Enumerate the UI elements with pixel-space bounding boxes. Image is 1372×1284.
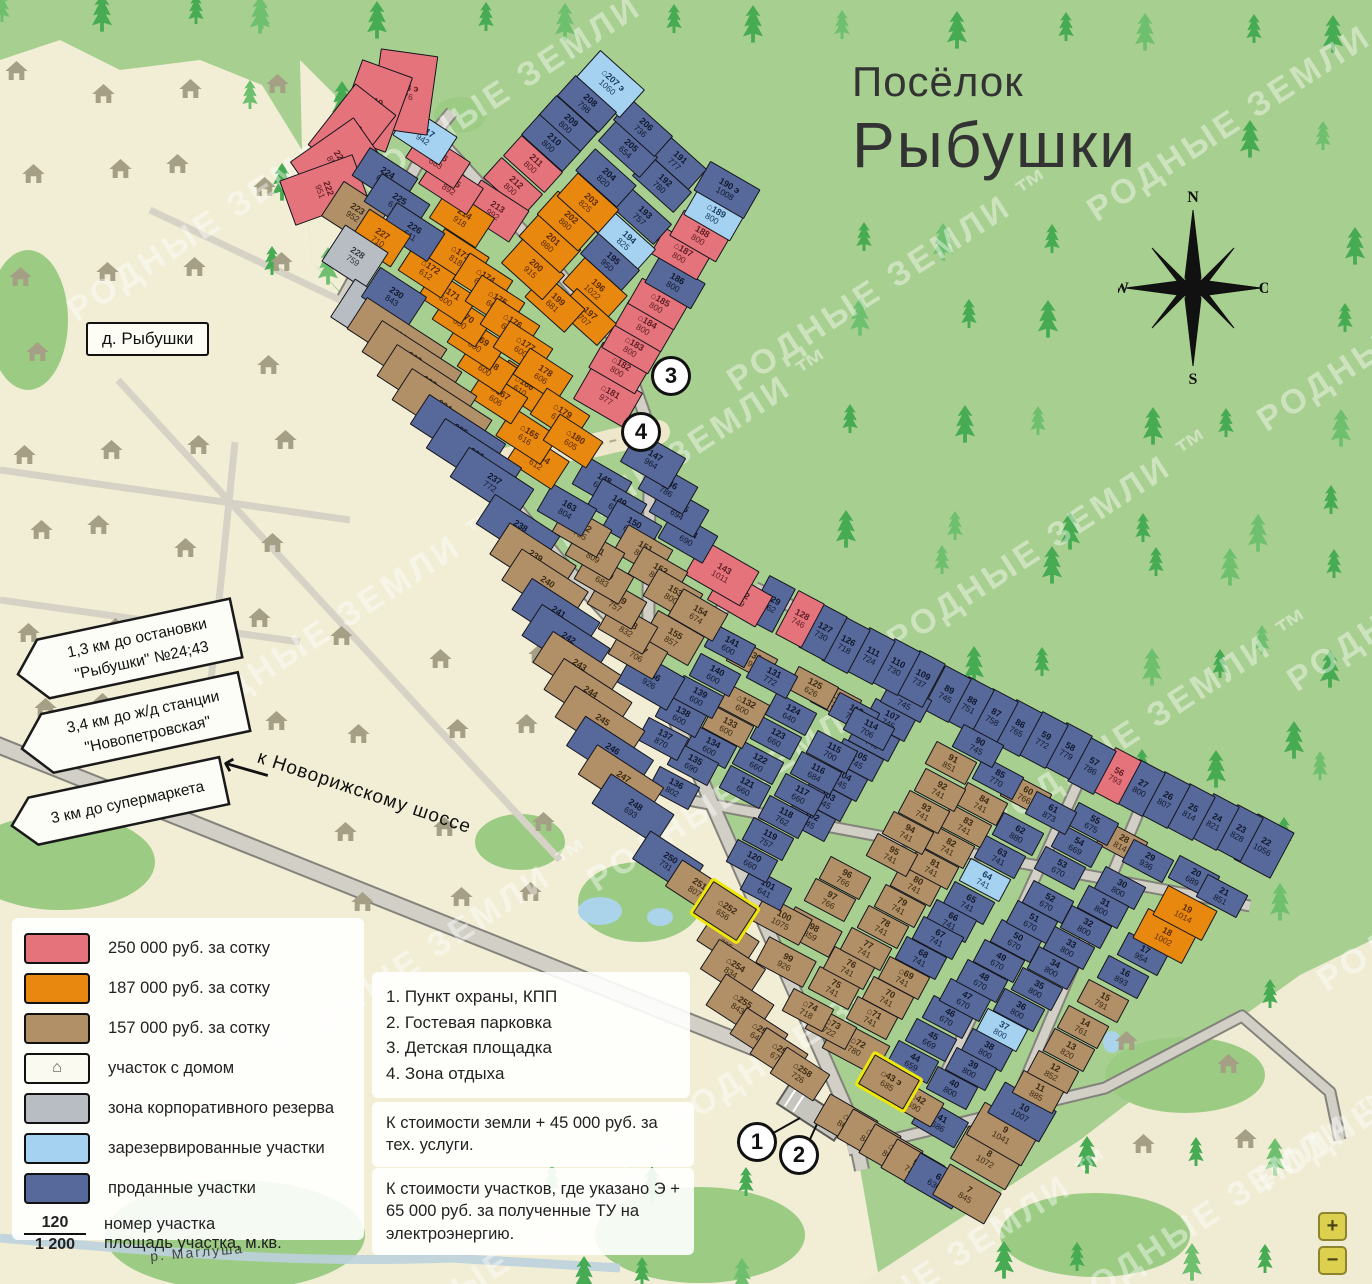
village-label: д. Рыбушки bbox=[86, 322, 209, 356]
legend-item-reserve-zone: зона корпоративного резерва bbox=[24, 1088, 352, 1128]
settlement-title: Посёлок Рыбушки bbox=[852, 58, 1137, 182]
house-icon: ⌂ bbox=[52, 1059, 62, 1077]
compass-n: N bbox=[1187, 189, 1199, 206]
legend-item-187k: 187 000 руб. за сотку bbox=[24, 968, 352, 1008]
compass-s: S bbox=[1189, 371, 1198, 388]
title-line2: Рыбушки bbox=[852, 108, 1137, 182]
note-electricity: К стоимости участков, где указано Э + 65… bbox=[372, 1168, 694, 1255]
legend-swatch-orange bbox=[24, 973, 90, 1004]
legend-swatch-lightblue bbox=[24, 1133, 90, 1164]
legend-area-example: 1 200 bbox=[24, 1235, 86, 1254]
poi-item-1: 1. Пункт охраны, КПП bbox=[386, 984, 676, 1010]
poi-num: 4. bbox=[386, 1064, 400, 1083]
poi-item-3: 3. Детская площадка bbox=[386, 1035, 676, 1061]
legend-label: проданные участки bbox=[108, 1179, 256, 1198]
legend-panel: 250 000 руб. за сотку 187 000 руб. за со… bbox=[12, 918, 364, 1240]
legend-label: 157 000 руб. за сотку bbox=[108, 1019, 270, 1038]
legend-number-example: 120 bbox=[24, 1214, 86, 1235]
poi-marker-3: 3 bbox=[651, 356, 691, 396]
title-line1: Посёлок bbox=[852, 58, 1137, 106]
legend-item-reserved: зарезервированные участки bbox=[24, 1128, 352, 1168]
legend-swatch-house: ⌂ bbox=[24, 1053, 90, 1084]
legend-label: 250 000 руб. за сотку bbox=[108, 939, 270, 958]
poi-marker-2: 2 bbox=[779, 1135, 819, 1175]
legend-number-label: номер участка bbox=[104, 1215, 282, 1234]
poi-label: Детская площадка bbox=[405, 1038, 552, 1057]
legend-area-label: площадь участка, м.кв. bbox=[104, 1234, 282, 1253]
parcel-29[interactable]: 29936 bbox=[1122, 839, 1175, 884]
zoom-out-button[interactable]: − bbox=[1318, 1246, 1347, 1275]
legend-fraction: 120 1 200 bbox=[24, 1214, 86, 1254]
poi-num: 1. bbox=[386, 987, 400, 1006]
poi-panel: 1. Пункт охраны, КПП 2. Гостевая парковк… bbox=[372, 972, 690, 1098]
legend-label: зона корпоративного резерва bbox=[108, 1099, 334, 1118]
poi-marker-4: 4 bbox=[621, 412, 661, 452]
legend-swatch-red bbox=[24, 933, 90, 964]
poi-label: Гостевая парковка bbox=[405, 1013, 552, 1032]
legend-swatch-darkblue bbox=[24, 1173, 90, 1204]
zoom-in-button[interactable]: + bbox=[1318, 1212, 1347, 1241]
poi-num: 3. bbox=[386, 1038, 400, 1057]
compass-rose: N S W O bbox=[1118, 188, 1268, 388]
note-services: К стоимости земли + 45 000 руб. за тех. … bbox=[372, 1102, 694, 1167]
map-canvas: РОДНЫЕ ЗЕМЛИ ™РОДНЫЕ ЗЕМЛИ ™РОДНЫЕ ЗЕМЛИ… bbox=[0, 0, 1372, 1284]
legend-item-157k: 157 000 руб. за сотку bbox=[24, 1008, 352, 1048]
legend-item-sold: проданные участки bbox=[24, 1168, 352, 1208]
poi-marker-1: 1 bbox=[737, 1122, 777, 1162]
legend-item-250k: 250 000 руб. за сотку bbox=[24, 928, 352, 968]
compass-w: W bbox=[1118, 280, 1129, 297]
legend-label: зарезервированные участки bbox=[108, 1139, 325, 1158]
poi-item-2: 2. Гостевая парковка bbox=[386, 1010, 676, 1036]
compass-e: O bbox=[1259, 280, 1268, 297]
legend-label: 187 000 руб. за сотку bbox=[108, 979, 270, 998]
legend-item-house: ⌂ участок с домом bbox=[24, 1048, 352, 1088]
poi-label: Пункт охраны, КПП bbox=[405, 987, 557, 1006]
poi-item-4: 4. Зона отдыха bbox=[386, 1061, 676, 1087]
parcel-131[interactable]: 131772 bbox=[746, 655, 799, 700]
legend-swatch-brown bbox=[24, 1013, 90, 1044]
legend-label: участок с домом bbox=[108, 1059, 234, 1078]
legend-item-ratio: 120 1 200 номер участка площадь участка,… bbox=[24, 1214, 352, 1254]
legend-swatch-gray bbox=[24, 1093, 90, 1124]
poi-num: 2. bbox=[386, 1013, 400, 1032]
poi-label: Зона отдыха bbox=[405, 1064, 505, 1083]
legend-ratio-labels: номер участка площадь участка, м.кв. bbox=[104, 1215, 282, 1253]
